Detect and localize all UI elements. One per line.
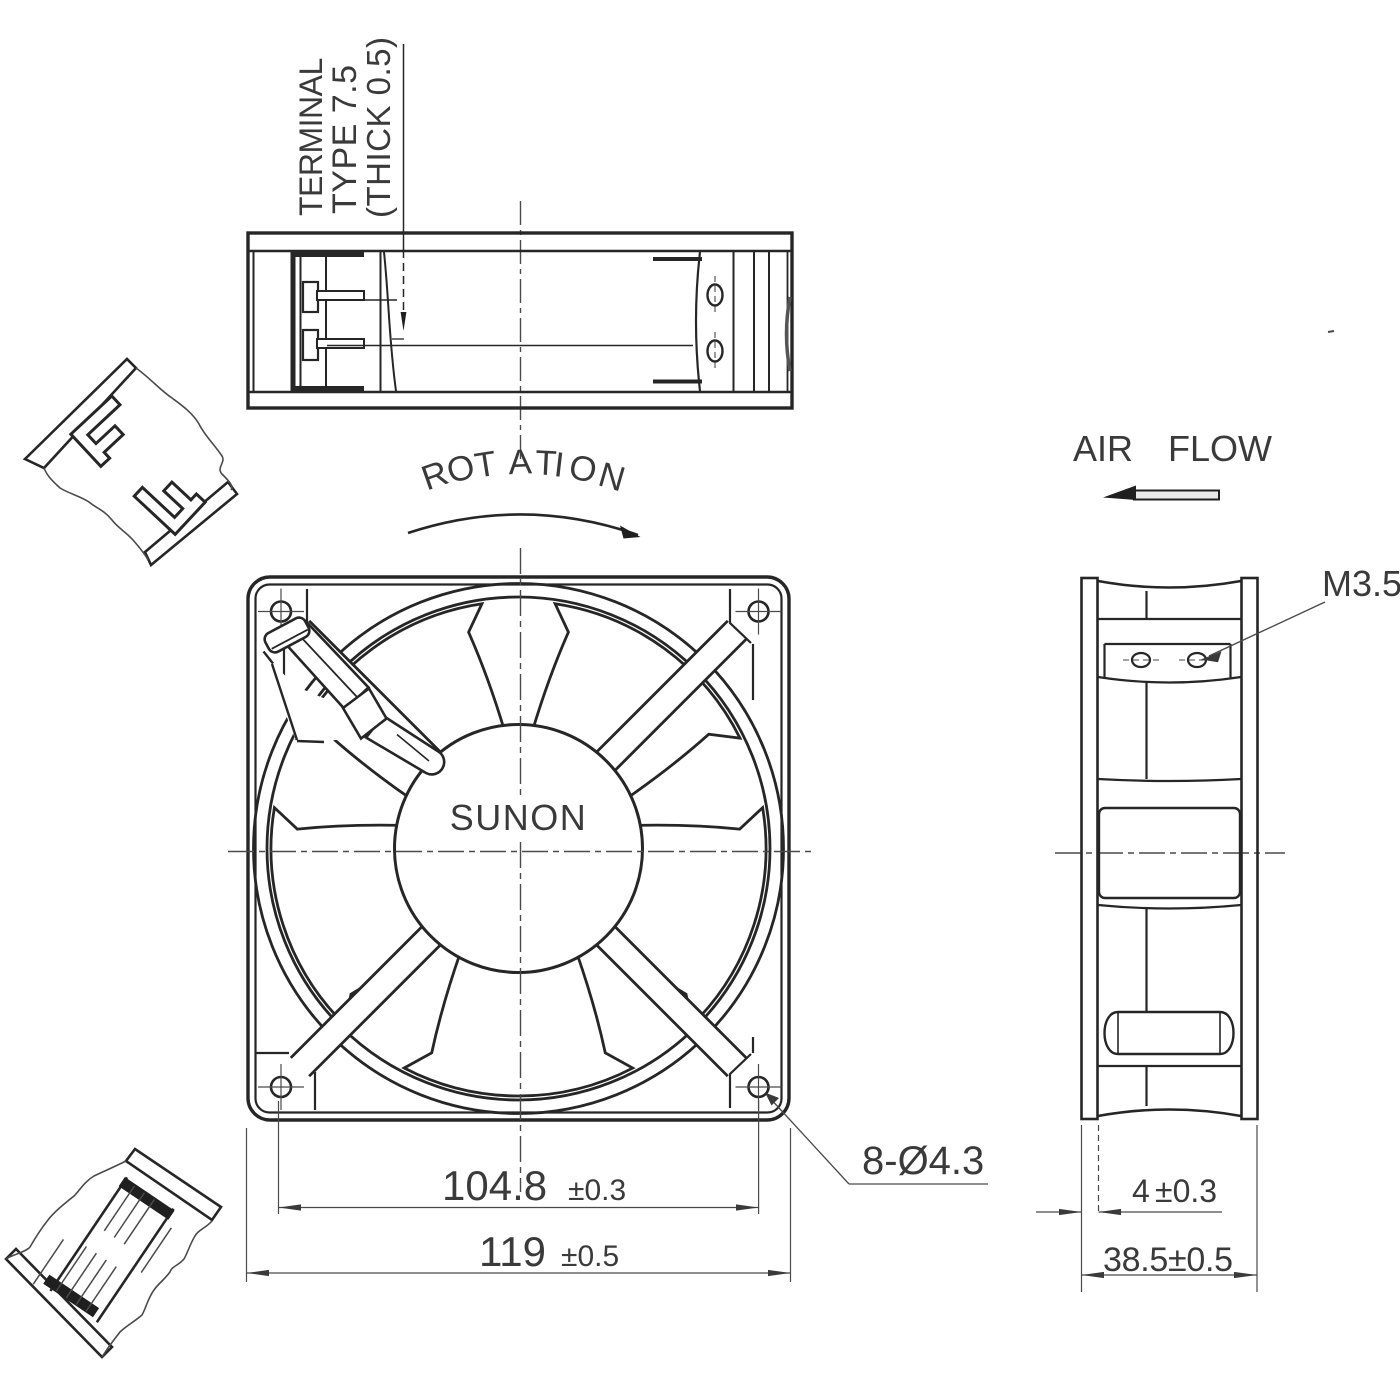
- svg-text:SUNON: SUNON: [450, 797, 588, 838]
- svg-text:±0.5: ±0.5: [561, 1240, 619, 1273]
- svg-text:A: A: [508, 442, 534, 482]
- svg-text:FLOW: FLOW: [1168, 428, 1272, 469]
- svg-text:(THICK 0.5): (THICK 0.5): [360, 36, 397, 218]
- svg-text:104.8: 104.8: [442, 1162, 547, 1209]
- svg-text:±0.3: ±0.3: [568, 1174, 626, 1207]
- svg-text:119: 119: [479, 1228, 546, 1275]
- svg-text:8-Ø4.3: 8-Ø4.3: [862, 1139, 984, 1183]
- svg-text:M3.5: M3.5: [1322, 563, 1400, 604]
- svg-text:TYPE 7.5: TYPE 7.5: [326, 64, 364, 214]
- svg-text:AIR: AIR: [1073, 428, 1133, 469]
- svg-text:38.5±0.5: 38.5±0.5: [1103, 1241, 1233, 1279]
- svg-text:TERMINAL: TERMINAL: [293, 58, 329, 216]
- svg-text:±0.3: ±0.3: [1155, 1173, 1217, 1209]
- svg-text:4: 4: [1132, 1173, 1150, 1209]
